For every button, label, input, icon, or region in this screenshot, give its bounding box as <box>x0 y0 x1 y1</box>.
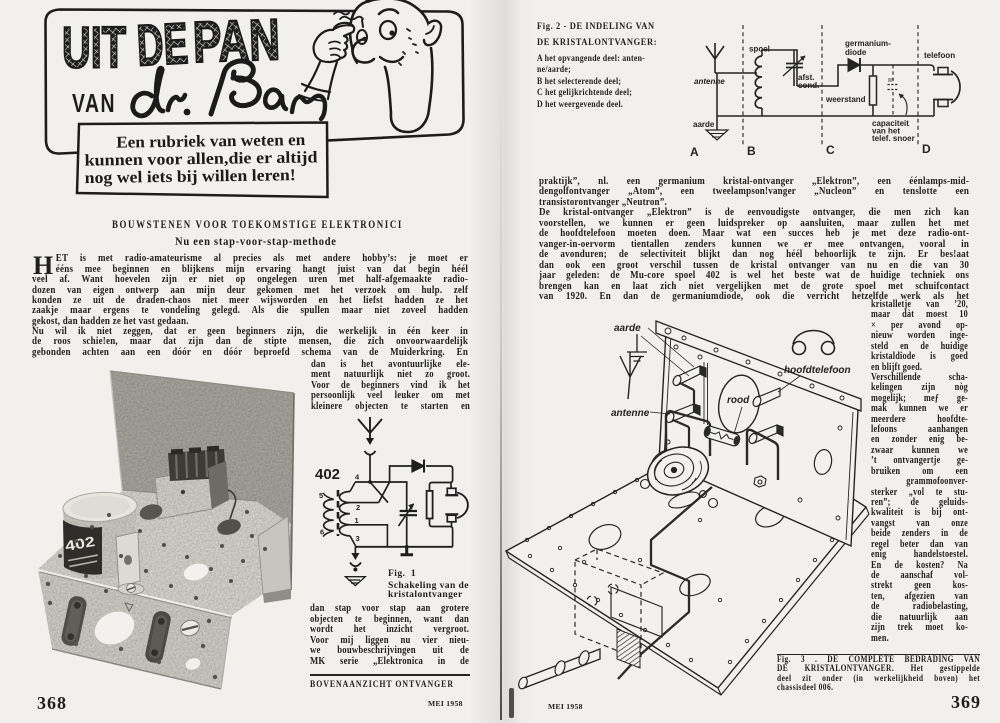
svg-text:antenne: antenne <box>694 77 725 86</box>
svg-text:telefoon: telefoon <box>924 51 955 60</box>
svg-text:UIT: UIT <box>62 16 126 81</box>
svg-text:aarde: aarde <box>693 120 715 129</box>
svg-text:2: 2 <box>356 503 360 512</box>
svg-text:402: 402 <box>315 466 340 483</box>
svg-text:nog wel iets bij willen leren!: nog wel iets bij willen leren! <box>85 165 296 187</box>
svg-text:weerstand: weerstand <box>825 95 866 104</box>
svg-text:aarde: aarde <box>614 323 641 334</box>
svg-text:5: 5 <box>319 491 323 500</box>
svg-text:VAN: VAN <box>72 88 116 118</box>
svg-text:B: B <box>747 144 756 158</box>
svg-text:3: 3 <box>356 534 360 543</box>
svg-text:D: D <box>922 142 931 156</box>
svg-text:germanium-: germanium- <box>845 39 891 48</box>
svg-text:antenne: antenne <box>611 408 650 419</box>
svg-text:C: C <box>826 143 835 157</box>
svg-text:diode: diode <box>845 48 867 57</box>
svg-text:1: 1 <box>355 516 359 525</box>
svg-text:6: 6 <box>320 528 324 537</box>
svg-text:4: 4 <box>355 473 360 482</box>
svg-text:A: A <box>690 145 699 159</box>
svg-text:PAN: PAN <box>192 7 281 75</box>
svg-text:hoofdtelefoon: hoofdtelefoon <box>784 365 851 376</box>
svg-text:rood: rood <box>727 395 750 406</box>
svg-text:spoel: spoel <box>749 45 770 54</box>
svg-text:cond.: cond. <box>798 81 819 90</box>
svg-text:telef. snoer: telef. snoer <box>872 134 915 143</box>
